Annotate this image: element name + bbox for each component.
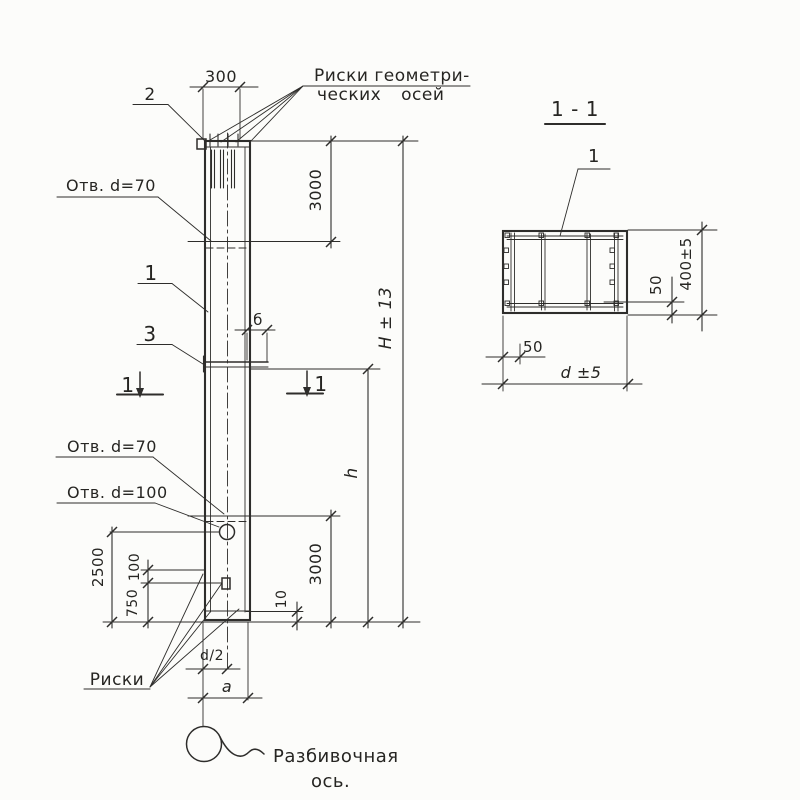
- section-outline: [503, 231, 627, 313]
- callout-item1: 1: [138, 261, 208, 312]
- dim-h: h: [342, 364, 373, 628]
- dim-a-label: a: [222, 677, 232, 696]
- callout-hole-big: Отв. d=100: [57, 483, 219, 527]
- axis-marks-text2: ческих осей: [317, 85, 444, 105]
- dim-100-label: 100: [127, 553, 143, 581]
- callout-hole-top: Отв. d=70: [57, 176, 211, 241]
- dim-300-top: 300: [190, 67, 258, 92]
- item2-label: 2: [144, 85, 155, 105]
- column-elevation: [110, 133, 340, 672]
- dim-b-label: б: [253, 311, 263, 329]
- layout-axis: Разбивочная ось.: [187, 727, 399, 793]
- section-title: 1 - 1: [551, 97, 599, 121]
- hole-top-label: Отв. d=70: [66, 176, 156, 195]
- layout-axis-text2: ось.: [311, 771, 350, 792]
- hole-big-label: Отв. d=100: [67, 483, 168, 502]
- reinforcement-cage: [504, 233, 623, 311]
- bottom-mark-plate: [222, 578, 230, 589]
- dim-100-750: 100 750: [125, 553, 153, 628]
- callout-axis-marks: Риски геометри- ческих осей: [210, 66, 470, 142]
- dim-400-label: 400±5: [677, 237, 695, 290]
- column-drawing: 300 3000 3000 h H ± 13 б 2500: [0, 0, 800, 800]
- dim-750-label: 750: [125, 589, 141, 617]
- drawing-sheet: 300 3000 3000 h H ± 13 б 2500: [0, 0, 800, 800]
- dim-a: a: [188, 677, 262, 703]
- dim-b-ledge: б: [235, 311, 275, 335]
- dim-3000-upper-label: 3000: [306, 169, 325, 212]
- dim-2500: 2500: [89, 527, 117, 628]
- item1-label: 1: [144, 261, 157, 285]
- dim-300-label: 300: [205, 67, 237, 86]
- item3-label: 3: [143, 322, 156, 346]
- dim-50-left-label: 50: [523, 338, 543, 356]
- top-rebar-stubs: [212, 150, 235, 188]
- section-1-1: 1 - 1 1: [482, 97, 717, 391]
- section-item1-label: 1: [588, 146, 600, 167]
- dim-H-label: H ± 13: [376, 287, 396, 349]
- dim-d5-label: d ±5: [561, 363, 602, 382]
- dim-3000-upper: 3000: [306, 136, 336, 248]
- rebar-dots: [504, 233, 619, 306]
- console-item3: [204, 356, 269, 372]
- dim-d-half-label: d/2: [200, 648, 224, 664]
- axis-squiggle: [220, 737, 264, 756]
- hole-d100: [110, 525, 235, 540]
- callout-bottom-marks: Риски: [84, 574, 239, 690]
- dim-10-label: 10: [274, 590, 290, 609]
- section-arrow-left: [136, 388, 144, 398]
- callout-item3: 3: [137, 322, 203, 364]
- dim-10: 10: [274, 590, 302, 630]
- dim-2500-label: 2500: [89, 547, 107, 587]
- section-cut-left: 1: [117, 372, 163, 398]
- axis-marks-text1: Риски геометри-: [314, 66, 470, 86]
- dim-3000-lower: 3000: [306, 510, 336, 628]
- hole-mid-label: Отв. d=70: [67, 437, 157, 456]
- section-cut-right: 1: [287, 371, 328, 397]
- layout-axis-text1: Разбивочная: [273, 746, 399, 767]
- bottom-marks-label: Риски: [90, 670, 144, 690]
- callout-item2: 2: [133, 85, 206, 142]
- dim-d-half: d/2: [186, 648, 240, 674]
- dim-h-label: h: [342, 467, 362, 478]
- section-bottom-dims: 50 d ±5: [482, 316, 642, 391]
- axis-bubble: [187, 727, 222, 762]
- dim-3000-lower-label: 3000: [306, 543, 325, 586]
- section-arrow-right: [303, 387, 311, 397]
- dim-50-right-label: 50: [647, 275, 665, 295]
- dim-H-total: H ± 13: [376, 136, 408, 628]
- section-cut-left-label: 1: [121, 373, 134, 397]
- section-cut-right-label: 1: [314, 372, 327, 396]
- section-right-dims: 50 400±5: [604, 222, 717, 331]
